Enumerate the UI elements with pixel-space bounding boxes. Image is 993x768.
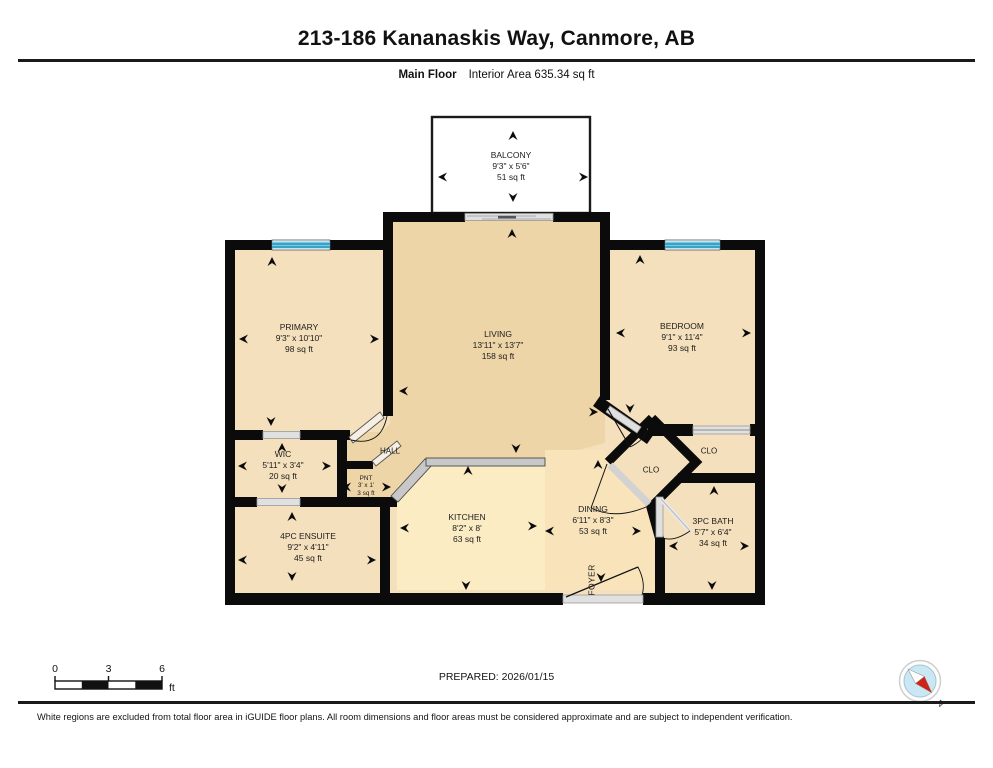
- room-label-bedroom: BEDROOM 9'1" x 11'4" 93 sq ft: [660, 321, 704, 355]
- footer-rule: [18, 701, 975, 704]
- room-label-living: LIVING 13'11" x 13'7" 158 sq ft: [473, 329, 524, 363]
- room-label-hall: HALL: [380, 447, 400, 458]
- floor-label: Main Floor: [398, 69, 456, 81]
- room-label-wic: WIC 5'11" x 3'4" 20 sq ft: [262, 449, 303, 483]
- room-label-bath: 3PC BATH 5'7" x 6'4" 34 sq ft: [693, 516, 734, 550]
- room-label-kitchen: KITCHEN 8'2" x 8' 63 sq ft: [448, 512, 485, 546]
- scale-bar: 0 3 6 ft: [52, 663, 175, 694]
- room-label-foyer: FOYER: [586, 564, 597, 595]
- room-label-ensuite: 4PC ENSUITE 9'2" x 4'11" 45 sq ft: [280, 531, 336, 565]
- floorplan-page: 0 3 6 ft N 213-186 Kananaskis Way, Canmo…: [0, 0, 993, 768]
- room-label-primary: PRIMARY 9'3" x 10'10" 98 sq ft: [276, 322, 323, 356]
- scale-unit: ft: [169, 682, 175, 694]
- interior-area-label: Interior Area 635.34 sq ft: [469, 69, 595, 81]
- room-label-pantry: PNT 3' x 1' 3 sq ft: [357, 475, 374, 497]
- scale-tick-6: 6: [159, 663, 165, 675]
- room-label-closet-bedroom: CLO: [701, 447, 717, 458]
- floor-plan-canvas: 0 3 6 ft N: [0, 0, 993, 768]
- prepared-date: PREPARED: 2026/01/15: [439, 671, 554, 683]
- floor-subtitle: Main FloorInterior Area 635.34 sq ft: [0, 69, 993, 81]
- disclaimer-text: White regions are excluded from total fl…: [37, 712, 793, 722]
- page-title: 213-186 Kananaskis Way, Canmore, AB: [0, 27, 993, 51]
- scale-tick-3: 3: [106, 663, 112, 675]
- scale-tick-0: 0: [52, 663, 58, 675]
- room-label-closet-hall: CLO: [643, 466, 659, 477]
- room-label-dining: DINING 6'11" x 8'3" 53 sq ft: [572, 504, 613, 538]
- room-label-balcony: BALCONY 9'3" x 5'6" 51 sq ft: [491, 150, 532, 184]
- header-rule: [18, 59, 975, 62]
